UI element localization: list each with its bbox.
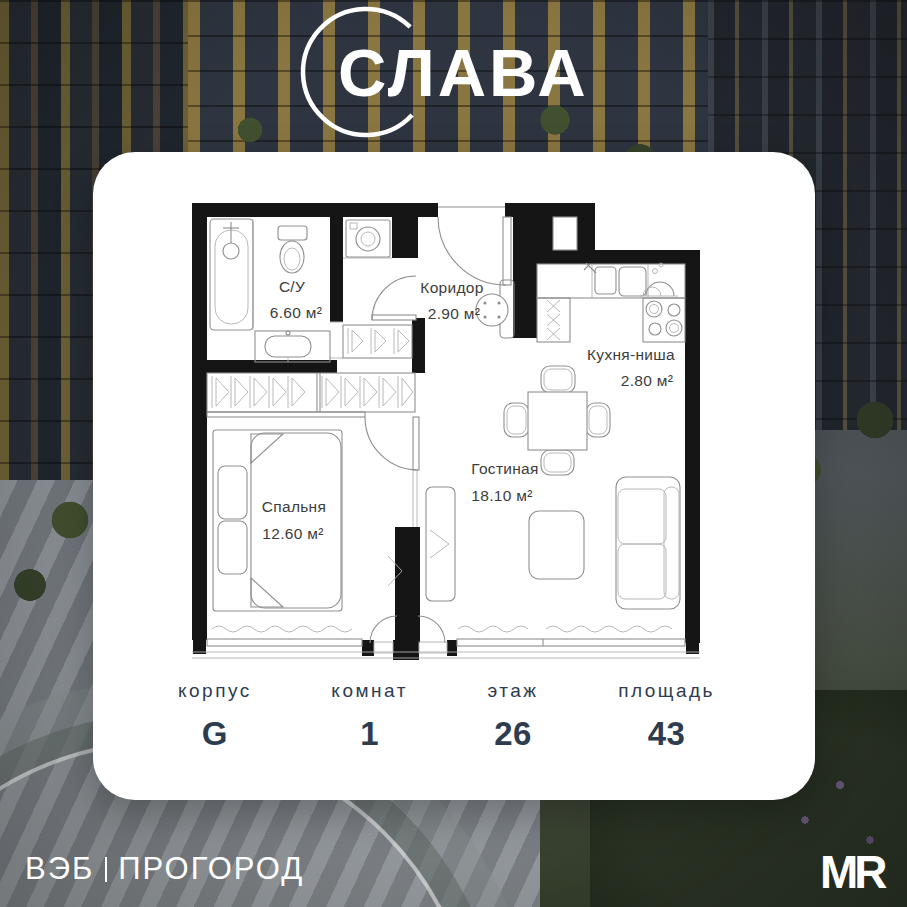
- developer-logo-veb: ВЭБ: [25, 851, 94, 887]
- walls: [192, 203, 700, 660]
- flyer: СЛАВА: [0, 0, 907, 907]
- apartment-info-row: корпус G комнат 1 этаж 26 площадь 43: [93, 680, 815, 753]
- bathtub-icon: [210, 219, 253, 330]
- bedroom-door-icon: [365, 417, 419, 470]
- info-item-ploshchad: площадь 43: [618, 680, 715, 753]
- stove-icon: [646, 301, 682, 336]
- info-label-komnat: комнат: [331, 680, 408, 702]
- entry-door-icon: [438, 207, 511, 285]
- room-area-bedroom: 12.60 м²: [262, 525, 323, 542]
- developer-logo-divider: [105, 857, 107, 882]
- info-value-korpus: G: [178, 715, 252, 753]
- mr-group-logo: MR: [820, 845, 884, 899]
- room-name-bathroom: С/У: [279, 278, 305, 295]
- dining-table-icon: [504, 366, 610, 475]
- info-item-komnat: комнат 1: [331, 680, 408, 753]
- room-area-living: 18.10 м²: [471, 487, 532, 504]
- floorplan-card: С/У 6.60 м² Коридор 2.90 м² Кухня-ниша 2…: [93, 152, 815, 800]
- rug-icon: [529, 511, 584, 579]
- toilet-icon: [278, 226, 307, 273]
- developer-logo-progorod: ПРОГОРОД: [118, 851, 304, 887]
- room-name-bedroom: Спальня: [262, 498, 326, 515]
- brand-logo: СЛАВА: [288, 2, 618, 152]
- info-label-korpus: корпус: [178, 680, 252, 702]
- wardrobe-icon: [207, 373, 415, 417]
- vent-shaft: [553, 217, 577, 250]
- info-value-komnat: 1: [331, 715, 408, 753]
- info-item-korpus: корпус G: [178, 680, 252, 753]
- room-name-corridor: Коридор: [420, 279, 483, 296]
- developer-logo: ВЭБ ПРОГОРОД: [25, 851, 304, 887]
- room-area-bathroom: 6.60 м²: [270, 304, 322, 321]
- room-labels: С/У 6.60 м² Коридор 2.90 м² Кухня-ниша 2…: [262, 278, 675, 542]
- sink-icon: [255, 331, 330, 362]
- info-item-etazh: этаж 26: [487, 680, 538, 753]
- room-area-kitchen: 2.80 м²: [621, 372, 673, 389]
- info-value-ploshchad: 43: [618, 715, 715, 753]
- room-area-corridor: 2.90 м²: [428, 305, 480, 322]
- kitchen-counter-icon: [537, 263, 685, 342]
- info-label-ploshchad: площадь: [618, 680, 715, 702]
- floor-plan: С/У 6.60 м² Коридор 2.90 м² Кухня-ниша 2…: [190, 200, 705, 668]
- info-label-etazh: этаж: [487, 680, 538, 702]
- sofa-icon: [616, 477, 680, 609]
- washing-machine-icon: [346, 220, 390, 257]
- info-value-etazh: 26: [487, 715, 538, 753]
- round-table-icon: [476, 294, 508, 326]
- bed-icon: [213, 430, 342, 611]
- room-name-living: Гостиная: [471, 460, 538, 477]
- logo-title: СЛАВА: [338, 35, 589, 110]
- room-name-kitchen: Кухня-ниша: [587, 346, 675, 363]
- hall-closet-icon: [343, 325, 412, 358]
